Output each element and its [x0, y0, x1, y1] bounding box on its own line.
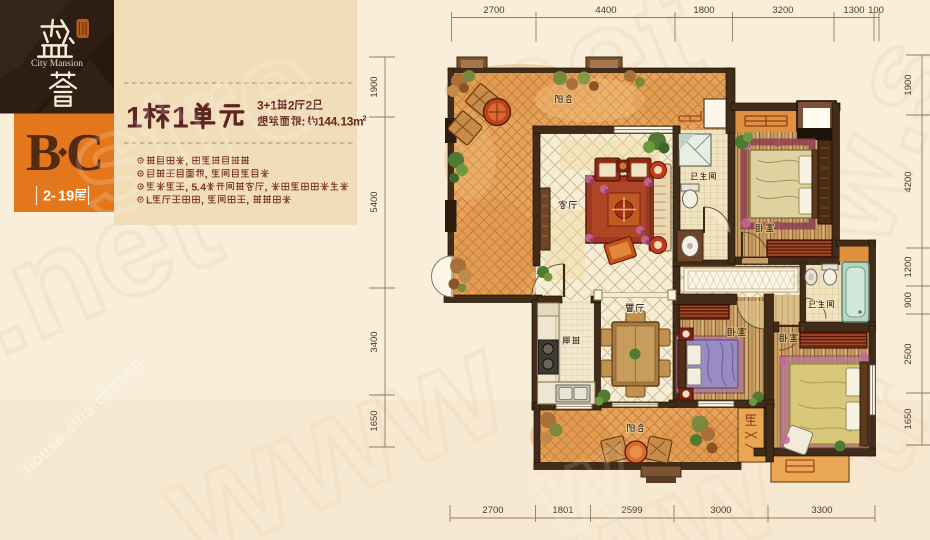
svg-text:3200: 3200 [772, 5, 793, 16]
svg-text:3400: 3400 [369, 331, 380, 352]
svg-text:City Mansion: City Mansion [31, 59, 83, 69]
svg-text:1: 1 [58, 189, 66, 205]
svg-text:1200: 1200 [903, 256, 914, 277]
svg-text:-: - [51, 189, 56, 205]
svg-text:100: 100 [868, 5, 884, 16]
svg-text:2700: 2700 [483, 5, 504, 16]
svg-text:2: 2 [43, 189, 51, 205]
svg-text:2700: 2700 [482, 505, 503, 516]
svg-text:900: 900 [903, 292, 914, 308]
svg-text:9: 9 [66, 189, 74, 205]
svg-text:,: , [265, 182, 268, 193]
svg-text:5400: 5400 [369, 191, 380, 212]
svg-text:2: 2 [363, 114, 367, 123]
svg-text:1300: 1300 [843, 5, 864, 16]
svg-text:1900: 1900 [369, 76, 380, 97]
svg-text:4400: 4400 [595, 5, 616, 16]
svg-text:3000: 3000 [710, 505, 731, 516]
svg-text:3300: 3300 [811, 505, 832, 516]
svg-text:,: , [246, 195, 249, 206]
svg-text:1650: 1650 [369, 410, 380, 431]
svg-text:1900: 1900 [903, 74, 914, 95]
svg-text:1800: 1800 [693, 5, 714, 16]
svg-text:4200: 4200 [903, 171, 914, 192]
svg-text:2500: 2500 [903, 343, 914, 364]
svg-text:1650: 1650 [903, 408, 914, 429]
